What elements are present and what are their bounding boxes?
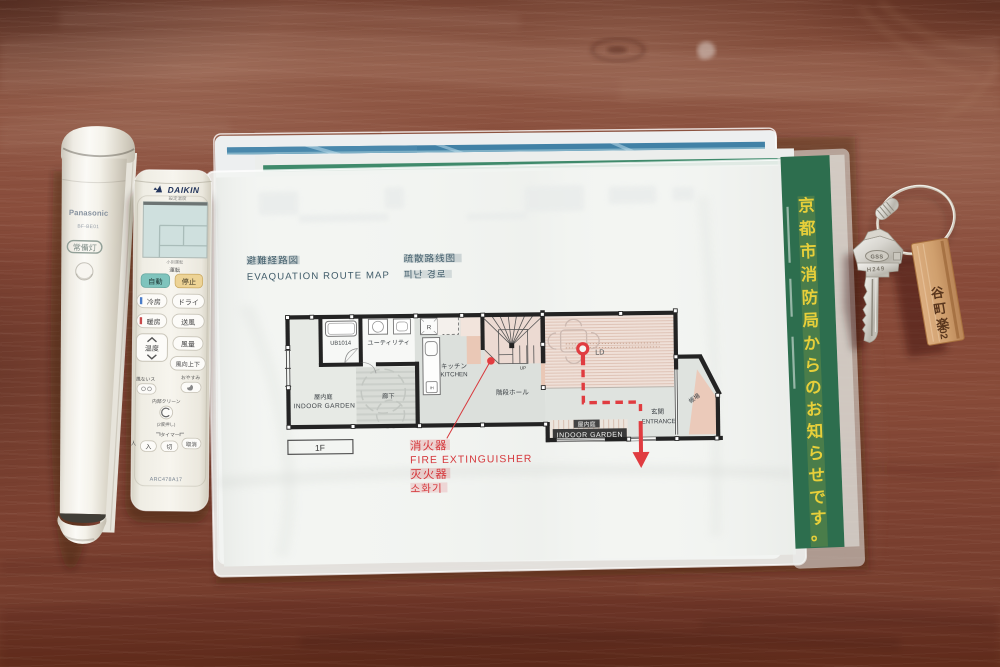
svg-text:ら: ら: [804, 356, 821, 376]
svg-text:取消: 取消: [186, 440, 197, 448]
svg-text:ARC478A17: ARC478A17: [150, 477, 183, 483]
svg-text:UP: UP: [520, 365, 526, 370]
svg-text:LD: LD: [595, 347, 604, 356]
svg-text:廊下: 廊下: [382, 392, 394, 400]
svg-text:冷房: 冷房: [147, 297, 161, 306]
svg-text:GSS: GSS: [870, 255, 883, 261]
svg-text:。: 。: [810, 526, 827, 545]
svg-text:屋内庭: 屋内庭: [578, 420, 596, 428]
svg-text:都: 都: [798, 218, 817, 239]
svg-text:で: で: [809, 489, 826, 508]
svg-text:か: か: [803, 334, 821, 354]
svg-text:R: R: [427, 325, 432, 331]
svg-text:ドライ: ドライ: [178, 299, 199, 307]
svg-text:人: 人: [131, 440, 137, 447]
svg-text:知: 知: [806, 421, 823, 442]
svg-text:切: 切: [166, 444, 172, 451]
svg-text:FIRE EXTINGUISHER: FIRE EXTINGUISHER: [410, 454, 532, 466]
svg-text:灭火器: 灭火器: [410, 468, 448, 481]
svg-text:玄関: 玄関: [651, 407, 665, 416]
svg-text:消火器: 消火器: [410, 438, 448, 452]
svg-text:市: 市: [799, 241, 816, 262]
svg-text:町: 町: [932, 300, 947, 317]
svg-text:暖房: 暖房: [147, 317, 161, 326]
svg-text:BF-BE01: BF-BE01: [77, 224, 99, 230]
svg-text:階段ホール: 階段ホール: [496, 387, 529, 396]
svg-text:の: の: [805, 379, 822, 398]
svg-text:入: 入: [145, 444, 151, 451]
svg-text:피난 경로: 피난 경로: [404, 268, 447, 281]
svg-text:EVAQUATION ROUTE MAP: EVAQUATION ROUTE MAP: [247, 270, 390, 283]
svg-text:避難経路図: 避難経路図: [247, 254, 300, 267]
svg-text:風量: 風量: [181, 341, 195, 349]
svg-text:ユーティリティ: ユーティリティ: [367, 339, 410, 347]
svg-text:消: 消: [800, 264, 817, 285]
svg-text:防: 防: [801, 287, 819, 308]
svg-text:局: 局: [802, 311, 819, 331]
svg-text:送風: 送風: [181, 318, 195, 327]
svg-text:温度: 温度: [145, 344, 159, 353]
svg-text:お: お: [806, 400, 824, 420]
svg-text:疏散路线图: 疏散路线图: [404, 252, 457, 265]
svg-text:せ: せ: [808, 467, 825, 486]
svg-text:ENTRANCE: ENTRANCE: [642, 418, 676, 425]
svg-text:INDOOR GARDEN: INDOOR GARDEN: [294, 403, 356, 411]
svg-text:KITCHEN: KITCHEN: [440, 371, 467, 378]
svg-text:1F: 1F: [315, 443, 325, 453]
svg-text:キッチン: キッチン: [441, 362, 467, 370]
svg-text:停止: 停止: [182, 277, 196, 286]
svg-text:京: 京: [798, 195, 815, 216]
svg-text:屋内庭: 屋内庭: [314, 393, 333, 401]
svg-text:風向上下: 風向上下: [176, 360, 200, 368]
svg-text:UB1014: UB1014: [330, 341, 352, 347]
svg-text:常備灯: 常備灯: [73, 242, 97, 253]
svg-text:소화기: 소화기: [410, 483, 442, 495]
svg-text:IH: IH: [430, 385, 434, 390]
svg-text:Panasonic: Panasonic: [69, 208, 109, 218]
svg-text:運転: 運転: [169, 267, 180, 274]
svg-text:自動: 自動: [148, 277, 162, 286]
svg-text:ら: ら: [807, 444, 824, 464]
svg-text:DAIKIN: DAIKIN: [168, 185, 200, 195]
